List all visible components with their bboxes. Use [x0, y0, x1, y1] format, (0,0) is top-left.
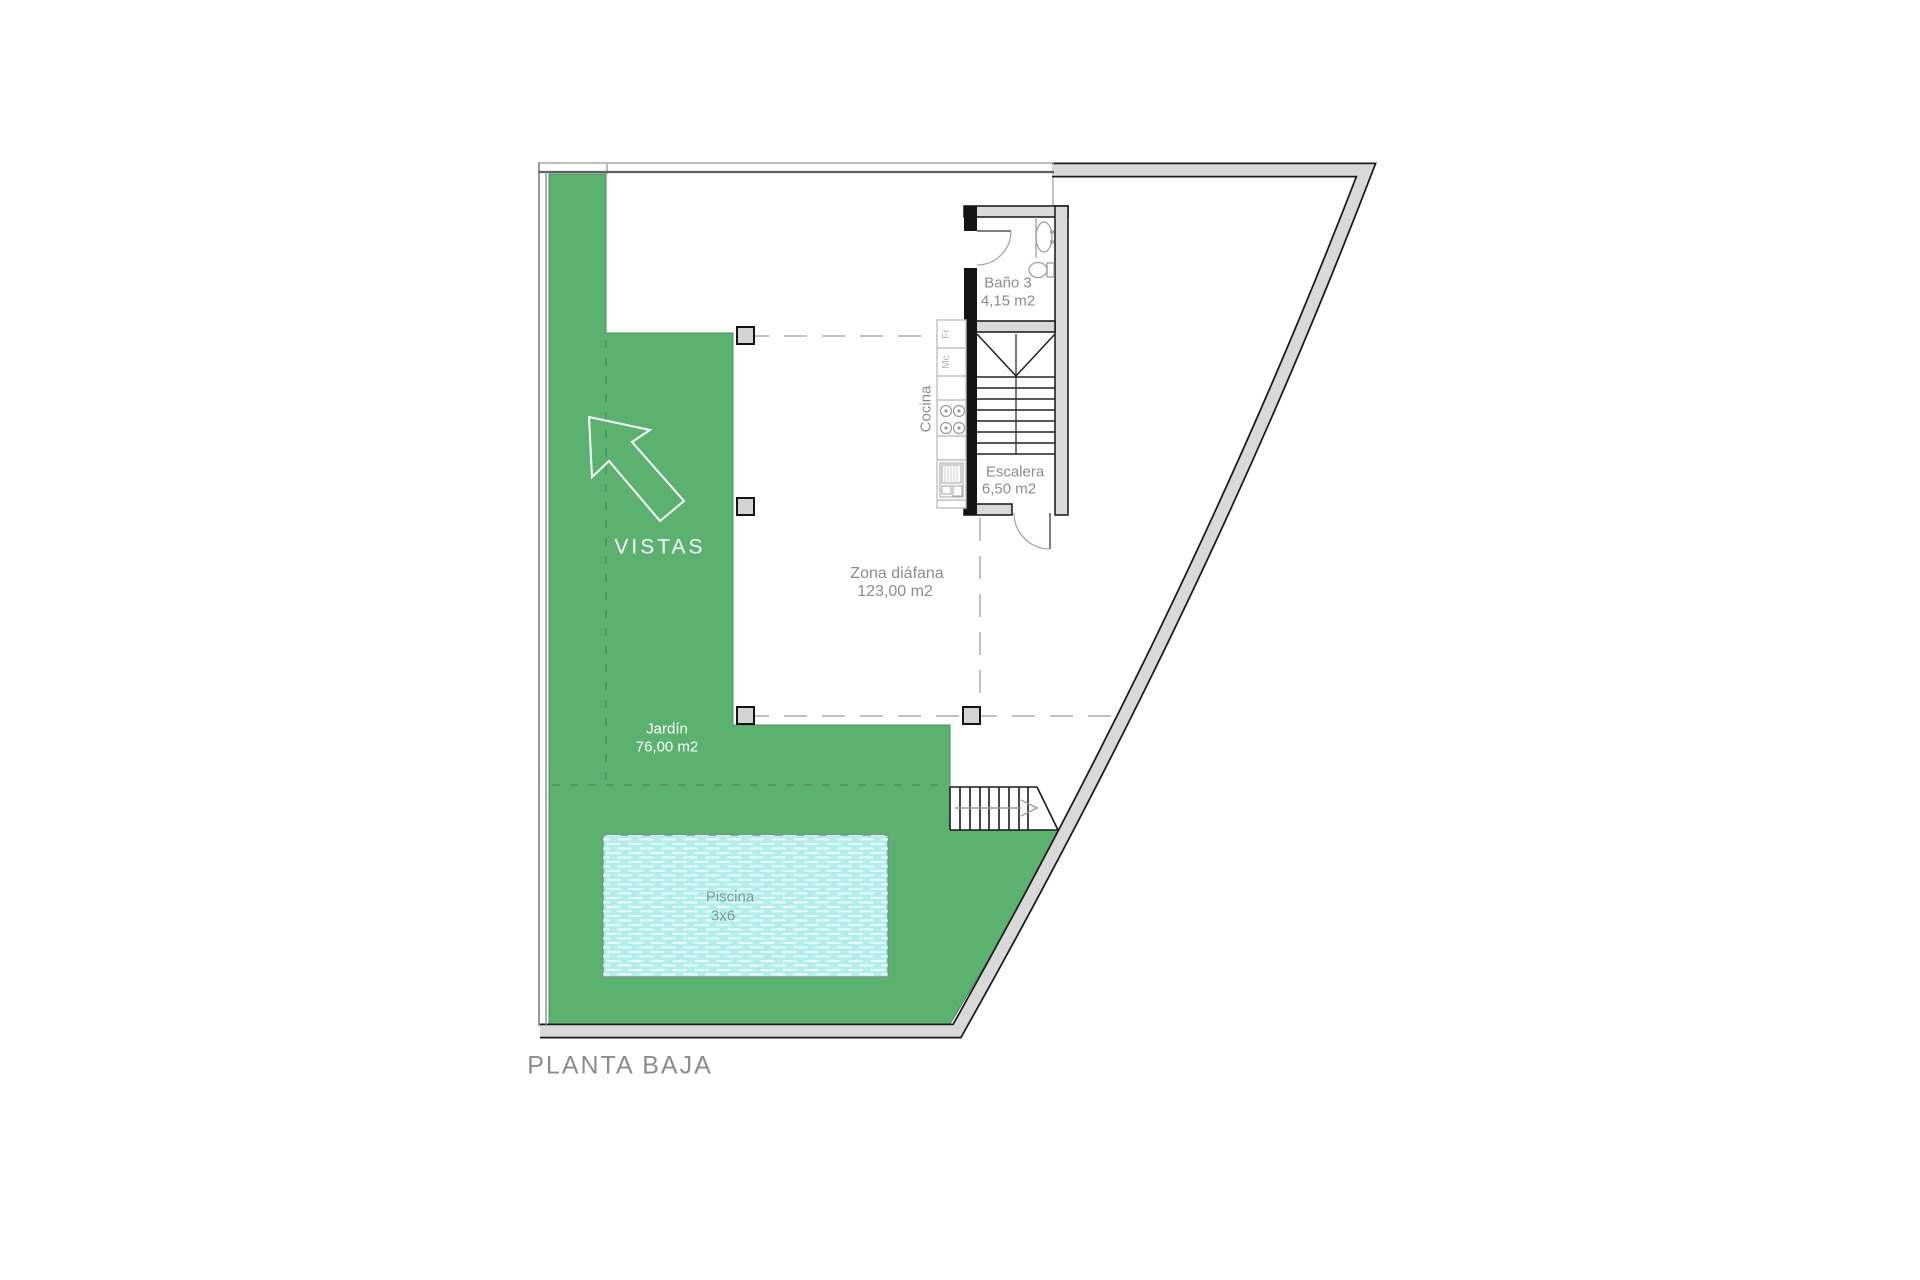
stairs-name-label: Escalera [986, 465, 1044, 480]
open-zone-area-label: 123,00 m2 [857, 584, 933, 600]
floor-plan-page: { "title": { "label": "PLANTA BAJA" }, "… [0, 0, 1920, 1280]
column [963, 707, 980, 724]
stairwell-door [1014, 513, 1050, 549]
kitchen-fridge-label: Fr [942, 329, 952, 338]
bathroom-area-label: 4,15 m2 [981, 294, 1035, 309]
column [737, 327, 754, 344]
open-zone-name-label: Zona diáfana [850, 566, 943, 582]
floor-plan-svg [0, 0, 1920, 1280]
pool-name-label: Piscina [706, 890, 754, 905]
kitchen-name-label: Cocina [919, 386, 934, 433]
garden-area-label: 76,00 m2 [636, 740, 699, 755]
toilet-tank [1047, 263, 1054, 277]
column [737, 498, 754, 515]
bathroom-fixtures [1029, 217, 1054, 278]
core-right-wall [1055, 206, 1068, 515]
exterior-stairs [950, 787, 1058, 830]
bathroom-top-wall [964, 206, 1068, 217]
floor-plan-stage: Baño 3 4,15 m2 Escalera 6,50 m2 Cocina F… [0, 0, 1920, 1280]
stairs-area-label: 6,50 m2 [982, 482, 1036, 497]
plan-title: PLANTA BAJA [527, 1054, 713, 1079]
bathroom-name-label: Baño 3 [984, 276, 1032, 291]
staircase [977, 334, 1055, 455]
garden-name-label: Jardín [646, 722, 688, 737]
pool-size-label: 3x6 [711, 909, 735, 924]
washbasin-icon [1036, 222, 1052, 252]
bathroom-stairs-divider-wall [964, 321, 1055, 332]
pool [603, 835, 888, 977]
bathroom-door [977, 231, 1011, 265]
column [737, 707, 754, 724]
kitchen-microwave-label: Mc [942, 355, 952, 368]
core-left-wall [964, 206, 977, 231]
views-label: VISTAS [614, 537, 705, 558]
